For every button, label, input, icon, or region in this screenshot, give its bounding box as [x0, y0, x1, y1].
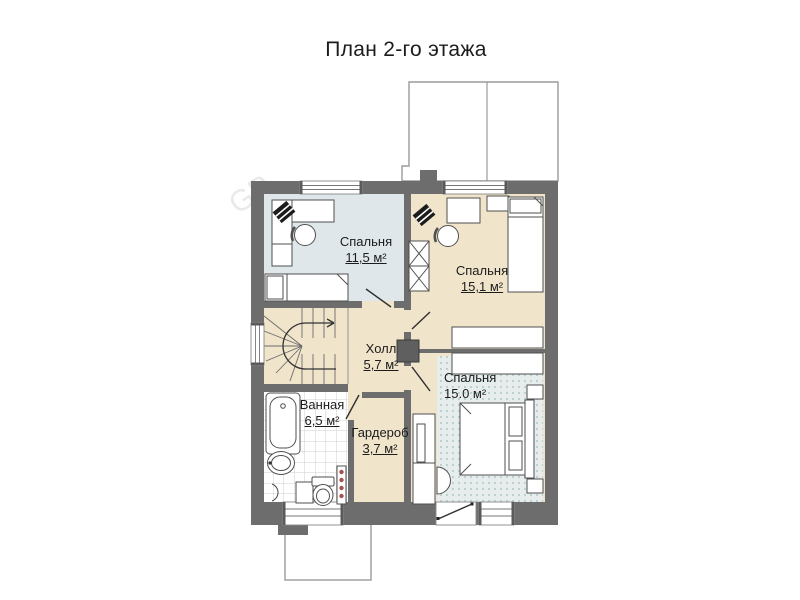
room-area: 11,5 м² [316, 250, 416, 266]
washer-icon [296, 482, 313, 503]
room-label-bedroom-2: Спальня 15,1 м² [432, 263, 532, 295]
room-area: 15.0 м² [444, 386, 534, 402]
sink-icon [268, 452, 295, 475]
window [283, 502, 343, 525]
bed-single [265, 274, 348, 301]
pillow [509, 407, 522, 436]
bed-double [460, 400, 534, 478]
toilet-icon [312, 477, 334, 506]
floor-plan-svg: GP GP [0, 0, 800, 600]
closet [452, 327, 543, 348]
room-name: Спальня [316, 234, 416, 250]
wall-step-bottom [278, 525, 308, 535]
room-name: Гардероб [332, 425, 428, 441]
shelf [487, 196, 509, 211]
room-label-hall: Холл 5,7 м² [336, 341, 426, 373]
desk [447, 198, 480, 223]
nightstand [527, 479, 543, 493]
room-label-bedroom-3: Спальня 15.0 м² [444, 370, 534, 402]
page: План 2-го этажа GP GP [0, 0, 800, 600]
room-label-wardrobe: Гардероб 3,7 м² [332, 425, 428, 457]
chimney-ledge-top [420, 170, 437, 181]
pillow [509, 441, 522, 470]
window [251, 323, 264, 365]
pillow [510, 199, 541, 213]
room-name: Ванная [280, 397, 364, 413]
towel-rail-icon [337, 466, 346, 504]
office-chair-icon [295, 225, 316, 246]
room-name: Спальня [432, 263, 532, 279]
roof-outline-top [402, 82, 558, 181]
headboard [525, 400, 534, 478]
cabinet [272, 244, 292, 266]
pillow [267, 276, 283, 299]
window [443, 181, 507, 194]
room-area: 15,1 м² [432, 279, 532, 295]
window [300, 181, 362, 194]
room-name: Холл [336, 341, 426, 357]
room-label-bedroom-1: Спальня 11,5 м² [316, 234, 416, 266]
room-area: 3,7 м² [332, 441, 428, 457]
room-name: Спальня [444, 370, 534, 386]
office-chair-icon [438, 226, 459, 247]
room-area: 5,7 м² [336, 357, 426, 373]
window [479, 502, 514, 525]
